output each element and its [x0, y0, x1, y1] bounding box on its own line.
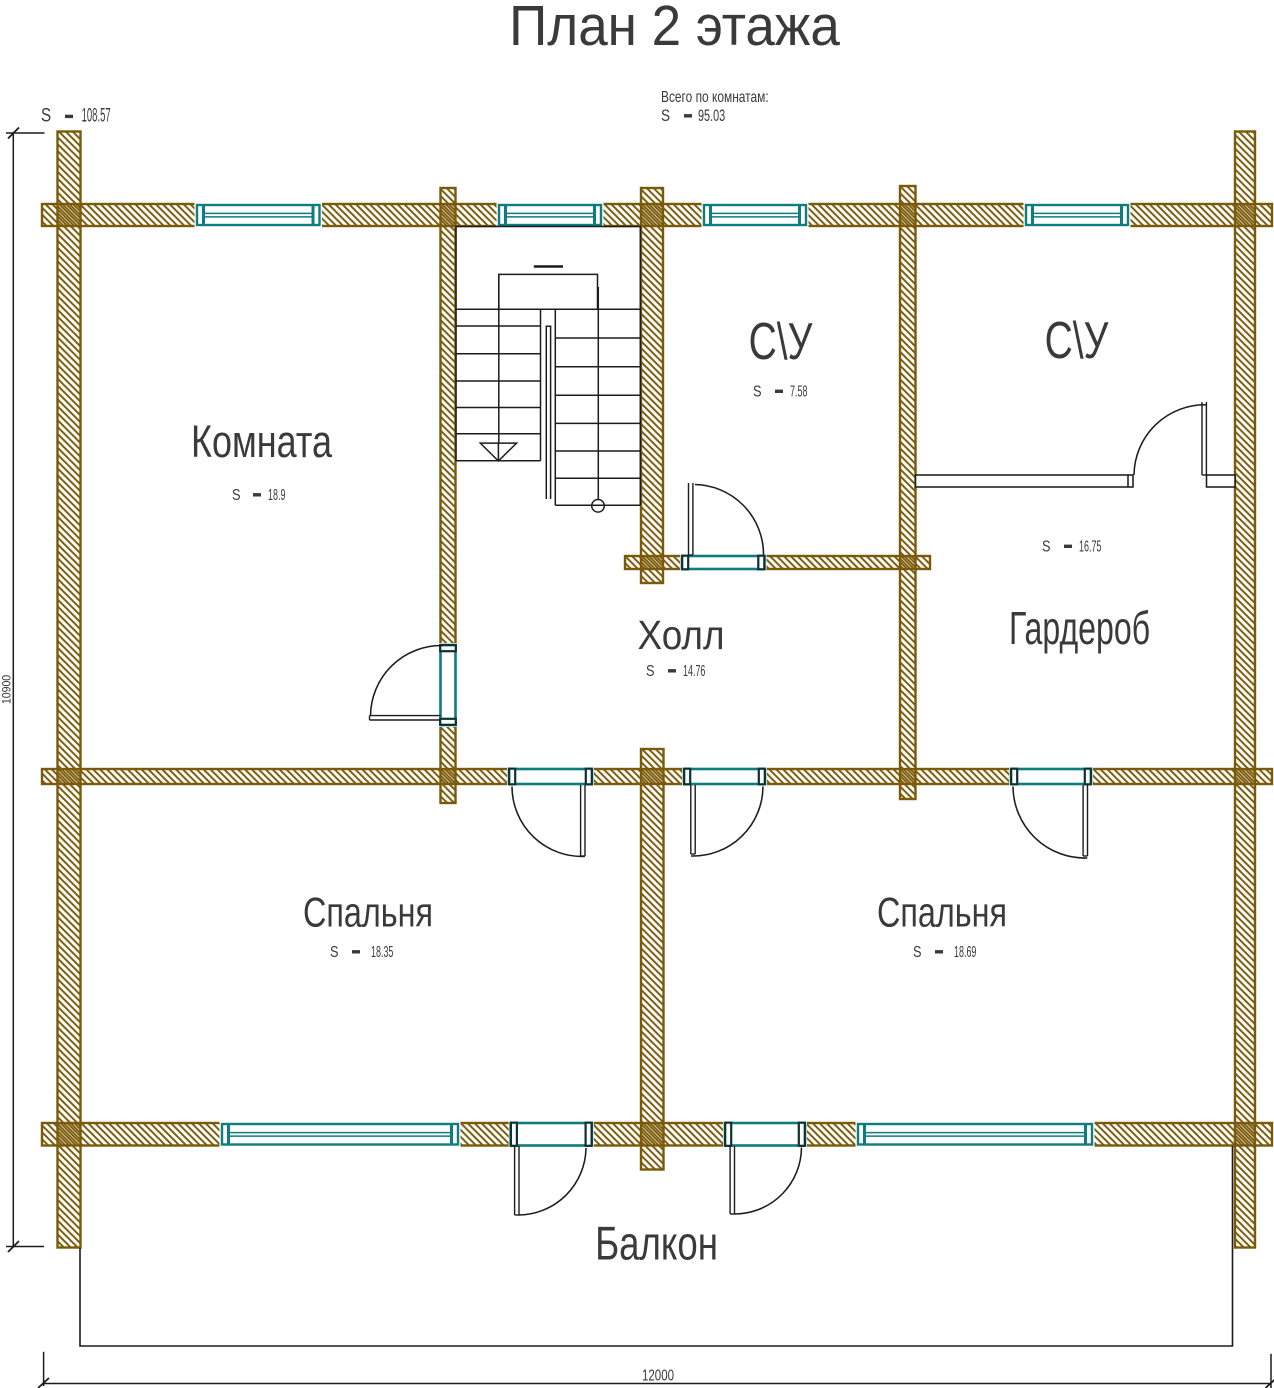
svg-text:18.35: 18.35: [371, 942, 393, 961]
svg-text:С\У: С\У: [1045, 310, 1109, 369]
svg-text:S: S: [330, 944, 339, 962]
svg-text:108.57: 108.57: [82, 105, 111, 127]
svg-text:Всего по комнатам:: Всего по комнатам:: [661, 87, 769, 105]
svg-text:Холл: Холл: [638, 613, 725, 658]
svg-text:Спальня: Спальня: [877, 889, 1007, 936]
svg-text:Комната: Комната: [191, 416, 332, 467]
svg-text:S: S: [646, 663, 655, 681]
svg-text:S: S: [661, 107, 670, 126]
svg-text:План 2 этажа: План 2 этажа: [509, 0, 840, 57]
svg-text:Спальня: Спальня: [303, 889, 433, 936]
svg-text:12000: 12000: [642, 1366, 674, 1384]
svg-text:S: S: [1042, 538, 1051, 556]
svg-text:Гардероб: Гардероб: [1009, 603, 1150, 654]
svg-text:7.58: 7.58: [790, 382, 807, 401]
svg-text:S: S: [913, 944, 922, 962]
svg-text:18.69: 18.69: [954, 942, 976, 961]
svg-text:С\У: С\У: [749, 311, 813, 370]
svg-text:16.75: 16.75: [1079, 537, 1101, 556]
svg-text:18.9: 18.9: [268, 485, 285, 504]
svg-text:S: S: [753, 383, 762, 401]
svg-text:10900: 10900: [1, 675, 14, 704]
svg-text:Балкон: Балкон: [595, 1217, 718, 1269]
svg-text:S: S: [41, 104, 51, 126]
svg-text:95.03: 95.03: [698, 107, 725, 126]
svg-text:S: S: [232, 487, 241, 505]
svg-text:14.76: 14.76: [683, 661, 705, 680]
